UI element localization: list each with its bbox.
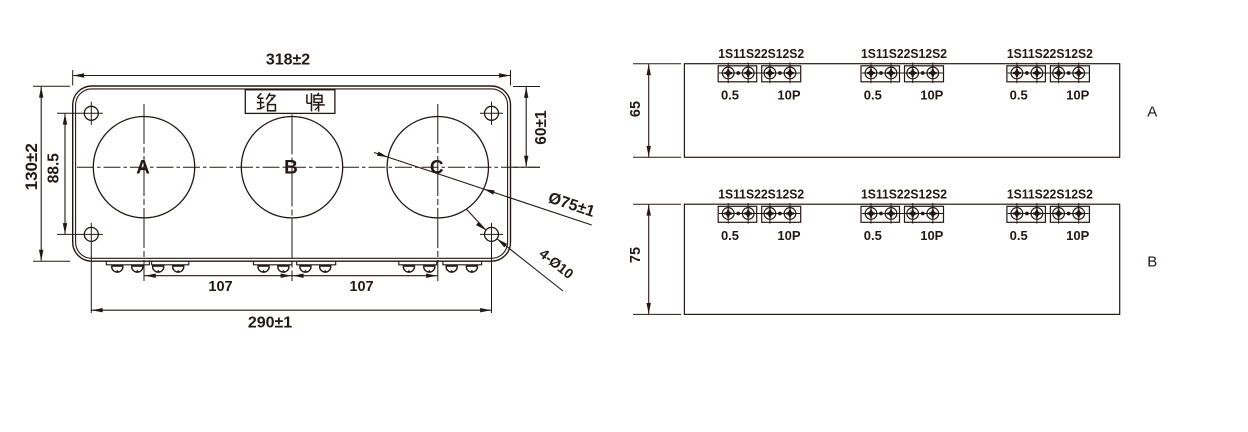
svg-text:88.5: 88.5	[46, 153, 63, 184]
svg-text:60±1: 60±1	[533, 110, 550, 145]
svg-text:10P: 10P	[920, 228, 943, 243]
svg-text:A: A	[136, 158, 150, 179]
svg-text:0.5: 0.5	[864, 87, 882, 102]
svg-text:1S11S22S12S2: 1S11S22S12S2	[1007, 188, 1093, 202]
svg-text:0.5: 0.5	[721, 87, 739, 102]
svg-text:10P: 10P	[1066, 228, 1089, 243]
svg-text:1S11S22S12S2: 1S11S22S12S2	[718, 188, 804, 202]
svg-text:1S11S22S12S2: 1S11S22S12S2	[861, 188, 947, 202]
svg-text:130±2: 130±2	[22, 143, 41, 190]
svg-text:0.5: 0.5	[1010, 87, 1028, 102]
svg-text:65: 65	[628, 101, 644, 117]
svg-text:318±2: 318±2	[266, 52, 310, 69]
svg-text:1S11S22S12S2: 1S11S22S12S2	[861, 47, 947, 61]
svg-text:4-Ø10: 4-Ø10	[536, 245, 577, 282]
svg-text:0.5: 0.5	[864, 228, 882, 243]
svg-text:290±1: 290±1	[248, 315, 292, 332]
svg-text:75: 75	[628, 247, 644, 263]
svg-text:10P: 10P	[777, 228, 800, 243]
svg-text:1S11S22S12S2: 1S11S22S12S2	[718, 47, 804, 61]
svg-text:Ø75±1: Ø75±1	[546, 190, 597, 221]
svg-text:B: B	[284, 158, 298, 179]
svg-text:A: A	[1147, 104, 1157, 121]
svg-text:107: 107	[208, 279, 232, 295]
svg-text:B: B	[1147, 254, 1157, 271]
svg-text:0.5: 0.5	[1010, 228, 1028, 243]
svg-text:10P: 10P	[920, 87, 943, 102]
svg-text:10P: 10P	[777, 87, 800, 102]
svg-text:107: 107	[349, 279, 373, 295]
svg-text:10P: 10P	[1066, 87, 1089, 102]
svg-text:1S11S22S12S2: 1S11S22S12S2	[1007, 47, 1093, 61]
svg-text:0.5: 0.5	[721, 228, 739, 243]
